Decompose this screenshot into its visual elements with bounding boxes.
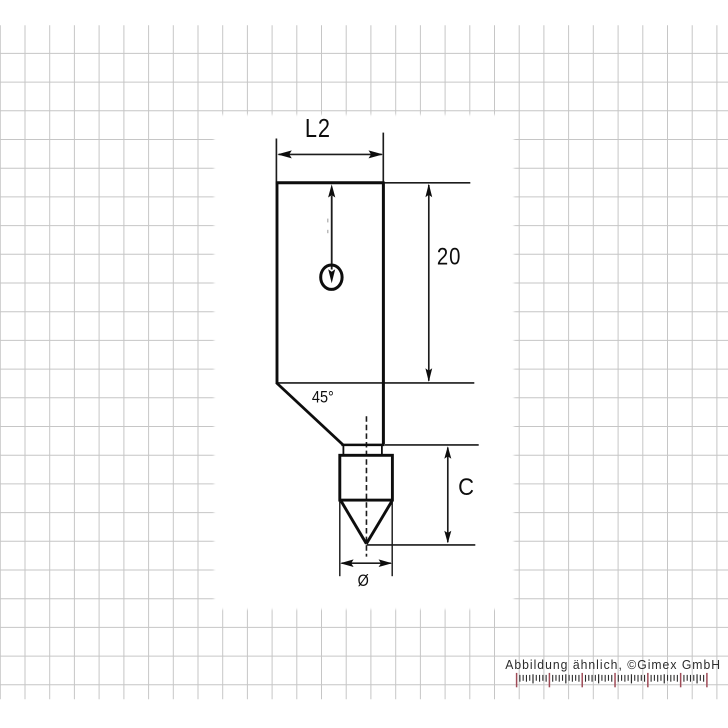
svg-text:L2: L2 (305, 115, 331, 143)
svg-text:20: 20 (437, 243, 461, 270)
svg-text:Abbildung ähnlich, ©Gimex GmbH: Abbildung ähnlich, ©Gimex GmbH (505, 658, 721, 672)
svg-text:C: C (458, 473, 474, 500)
svg-text:Ø: Ø (358, 572, 369, 590)
svg-text:45°: 45° (312, 389, 334, 407)
